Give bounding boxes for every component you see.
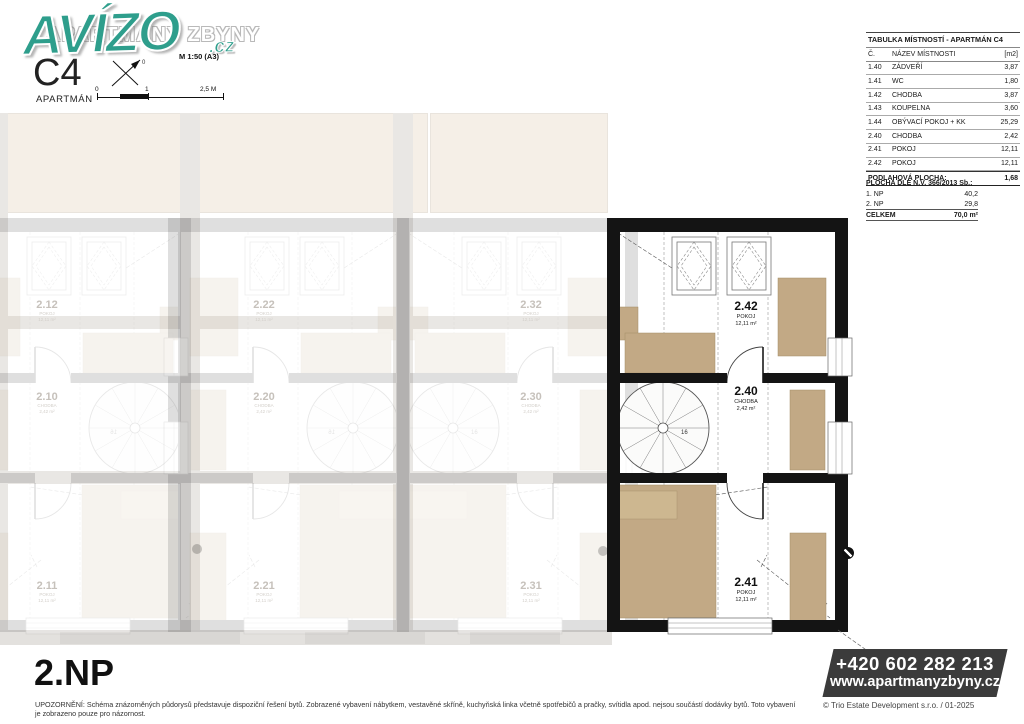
copyright-text: © Trio Estate Development s.r.o. / 01-20… — [823, 701, 974, 710]
ghost-room-label: 2.31POKOJ12,11 m² — [501, 580, 561, 604]
table-row: 1.40ZÁDVEŘÍ3,87 — [866, 62, 1020, 76]
summary-row: 1. NP40,2 — [866, 189, 978, 199]
room-table: TABULKA MÍSTNOSTÍ - APARTMÁN C4 Č. NÁZEV… — [866, 32, 1020, 186]
contact-banner[interactable]: +420 602 282 213 www.apartmanyzbyny.cz — [822, 649, 1007, 697]
table-row: 2.41POKOJ12,11 — [866, 144, 1020, 158]
table-row: 1.42CHODBA3,87 — [866, 89, 1020, 103]
disclaimer-text: UPOZORNĚNÍ: Schéma znázorněných půdorysů… — [35, 700, 800, 718]
ghost-roof-outline — [430, 113, 608, 213]
room-table-title: TABULKA MÍSTNOSTÍ - APARTMÁN C4 — [866, 32, 1020, 48]
unit-type-label: APARTMÁN — [36, 94, 93, 105]
ghost-room-label: 2.32POKOJ12,11 m² — [501, 299, 561, 323]
ghost-room-label: 2.11POKOJ12,11 m² — [17, 580, 77, 604]
scale-bar: 0 1 2,5 M — [92, 86, 232, 104]
table-row: 2.40CHODBA2,42 — [866, 130, 1020, 144]
ghost-room-label: 2.12POKOJ12,11 m² — [17, 299, 77, 323]
room-table-header: Č. NÁZEV MÍSTNOSTI [m2] — [866, 48, 1020, 62]
ghost-room-label: 2.10CHODBA2,42 m² — [17, 391, 77, 415]
area-summary: PLOCHA DLE N.V. 366/2013 Sb.: 1. NP40,2 … — [866, 180, 978, 221]
drawing-scale-note: M 1:50 (A3) — [179, 52, 219, 61]
contact-phone[interactable]: +420 602 282 213 — [828, 654, 1002, 674]
table-row: 1.41WC1,80 — [866, 75, 1020, 89]
ghost-room-label: 2.20CHODBA2,42 m² — [234, 391, 294, 415]
room-label-241: 2.41 POKOJ 12,11 m² — [706, 576, 786, 605]
summary-total-row: CELKEM70,0 m² — [866, 210, 978, 221]
contact-website-link[interactable]: www.apartmanyzbyny.cz — [828, 674, 1002, 691]
ghost-room-label: 2.30CHODBA2,42 m² — [501, 391, 561, 415]
table-row: 1.43KOUPELNA3,60 — [866, 103, 1020, 117]
survey-marker-icon — [842, 547, 854, 559]
area-summary-title: PLOCHA DLE N.V. 366/2013 Sb.: — [866, 180, 978, 189]
summary-row: 2. NP29,8 — [866, 199, 978, 210]
table-row: 1.44OBÝVACÍ POKOJ + KK25,29 — [866, 116, 1020, 130]
ghost-marker-dot — [192, 544, 202, 554]
ghost-room-label: 2.21POKOJ12,11 m² — [234, 580, 294, 604]
avizo-watermark-logo: AVÍZO — [21, 0, 180, 68]
floorplan-sheet: 16 — [0, 0, 1024, 724]
ghost-roof-outline — [0, 113, 188, 213]
ghost-room-label: 2.22POKOJ12,11 m² — [234, 299, 294, 323]
room-label-242: 2.42 POKOJ 12,11 m² — [706, 300, 786, 329]
room-label-240: 2.40 CHODBA 2,42 m² — [706, 385, 786, 414]
floor-level-label: 2.NP — [34, 652, 114, 694]
table-row: 2.42POKOJ12,11 — [866, 158, 1020, 172]
